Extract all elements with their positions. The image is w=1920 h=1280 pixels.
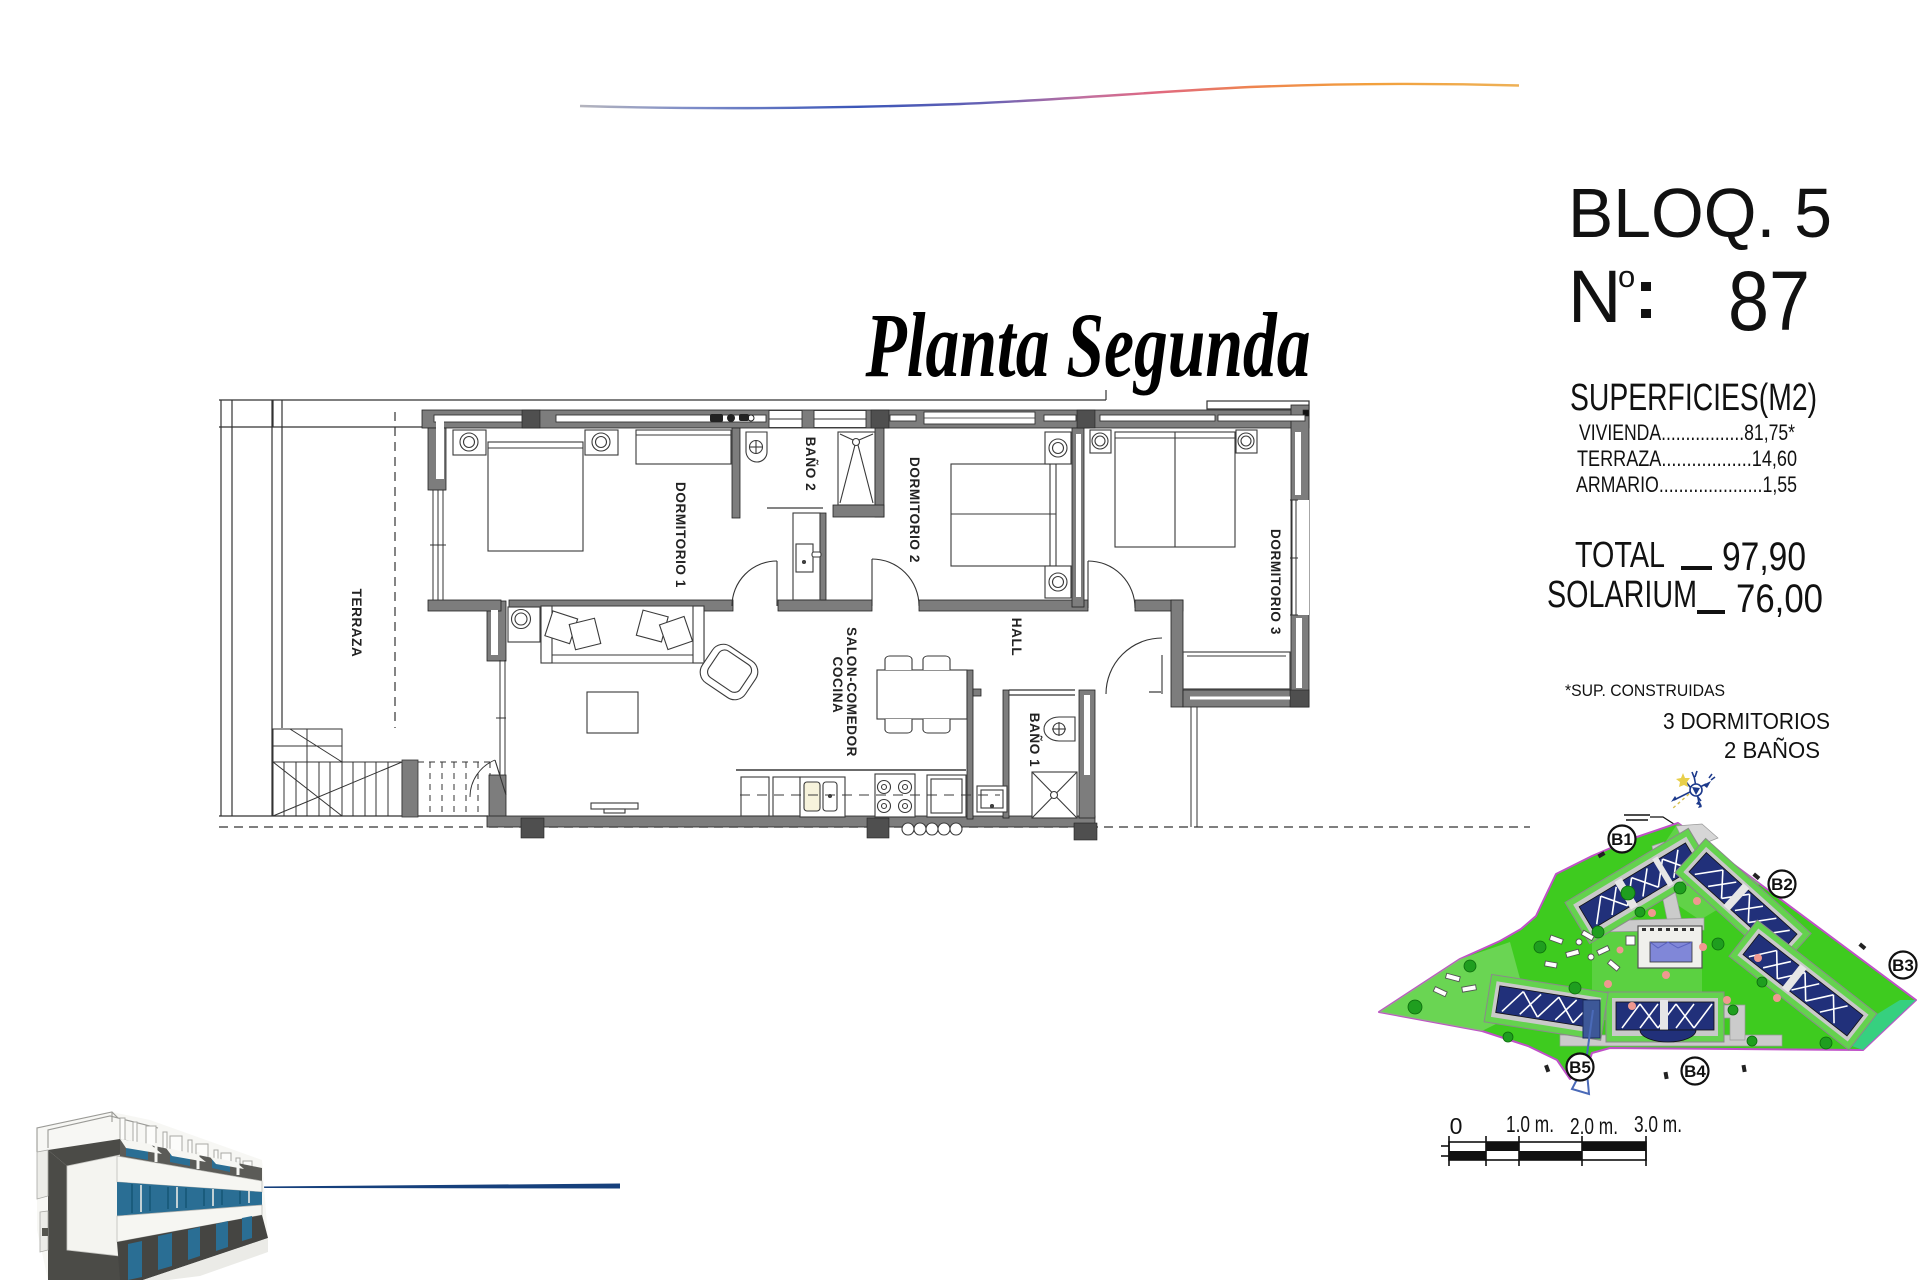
svg-text:SUPERFICIES(M2): SUPERFICIES(M2) — [1570, 377, 1817, 419]
svg-text:2.0 m.: 2.0 m. — [1570, 1113, 1618, 1139]
svg-text:87: 87 — [1728, 254, 1810, 348]
svg-text:DORMITORIO 1: DORMITORIO 1 — [673, 482, 688, 588]
svg-text:3 DORMITORIOS: 3 DORMITORIOS — [1663, 708, 1830, 734]
svg-text:SOLARIUM: SOLARIUM — [1547, 574, 1697, 616]
svg-text:B5: B5 — [1569, 1058, 1591, 1077]
svg-text:VIVIENDA.................81,75: VIVIENDA.................81,75* — [1579, 420, 1795, 445]
svg-text:DORMITORIO 2: DORMITORIO 2 — [907, 457, 922, 563]
svg-text:N: N — [1568, 255, 1621, 338]
svg-text:TERRAZA..................14,60: TERRAZA..................14,60 — [1577, 446, 1797, 471]
svg-text:3.0 m.: 3.0 m. — [1634, 1111, 1682, 1137]
svg-text:o: o — [1618, 259, 1635, 294]
svg-text:COCINA: COCINA — [830, 657, 845, 714]
svg-text:2 BAÑOS: 2 BAÑOS — [1724, 737, 1820, 763]
svg-text:DORMITORIO 3: DORMITORIO 3 — [1268, 529, 1283, 635]
svg-text:76,00: 76,00 — [1736, 577, 1823, 621]
svg-text:B1: B1 — [1611, 830, 1633, 849]
svg-text:Planta Segunda: Planta Segunda — [865, 294, 1311, 396]
svg-text:SALON-COMEDOR: SALON-COMEDOR — [844, 627, 859, 757]
svg-text:BLOQ. 5: BLOQ. 5 — [1568, 174, 1832, 252]
svg-text:ARMARIO.....................1,: ARMARIO.....................1,55 — [1576, 472, 1797, 497]
svg-text:0: 0 — [1450, 1113, 1463, 1139]
svg-text:TOTAL: TOTAL — [1575, 534, 1665, 575]
svg-text:B3: B3 — [1892, 956, 1914, 975]
svg-text:BAÑO 1: BAÑO 1 — [1027, 713, 1042, 768]
svg-text:B4: B4 — [1684, 1062, 1706, 1081]
svg-text:TERRAZA: TERRAZA — [349, 589, 364, 658]
svg-text:B2: B2 — [1771, 875, 1793, 894]
svg-text:97,90: 97,90 — [1722, 535, 1806, 579]
svg-text:BAÑO 2: BAÑO 2 — [803, 437, 818, 492]
svg-text:*SUP. CONSTRUIDAS: *SUP. CONSTRUIDAS — [1565, 681, 1725, 700]
svg-text:HALL: HALL — [1009, 618, 1024, 656]
svg-text:1.0 m.: 1.0 m. — [1506, 1111, 1554, 1137]
